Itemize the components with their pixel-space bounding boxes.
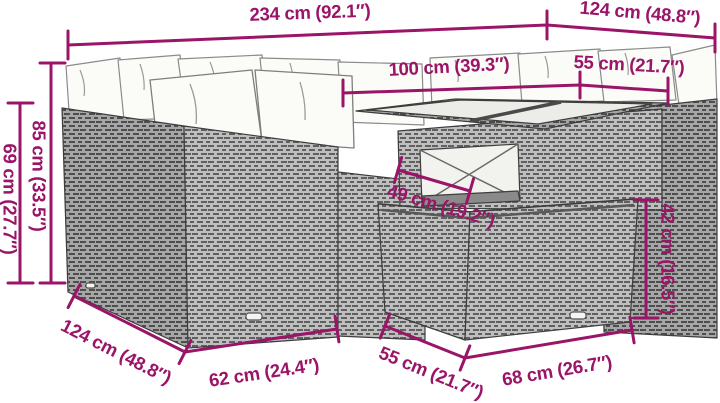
dim-label-total-width: 234 cm (92.1″): [249, 2, 370, 25]
product-dimension-diagram: 234 cm (92.1″) 124 cm (48.8″) 100 cm (39…: [0, 0, 720, 403]
ottoman: [378, 199, 638, 340]
corner-sofa: [62, 108, 425, 348]
dim-label-back-height: 85 cm (33.5″): [29, 121, 48, 232]
dim-label-ottoman-height: 42 cm (16.5″): [658, 204, 677, 315]
dim-label-arm-height: 69 cm (27.7″): [0, 144, 18, 255]
